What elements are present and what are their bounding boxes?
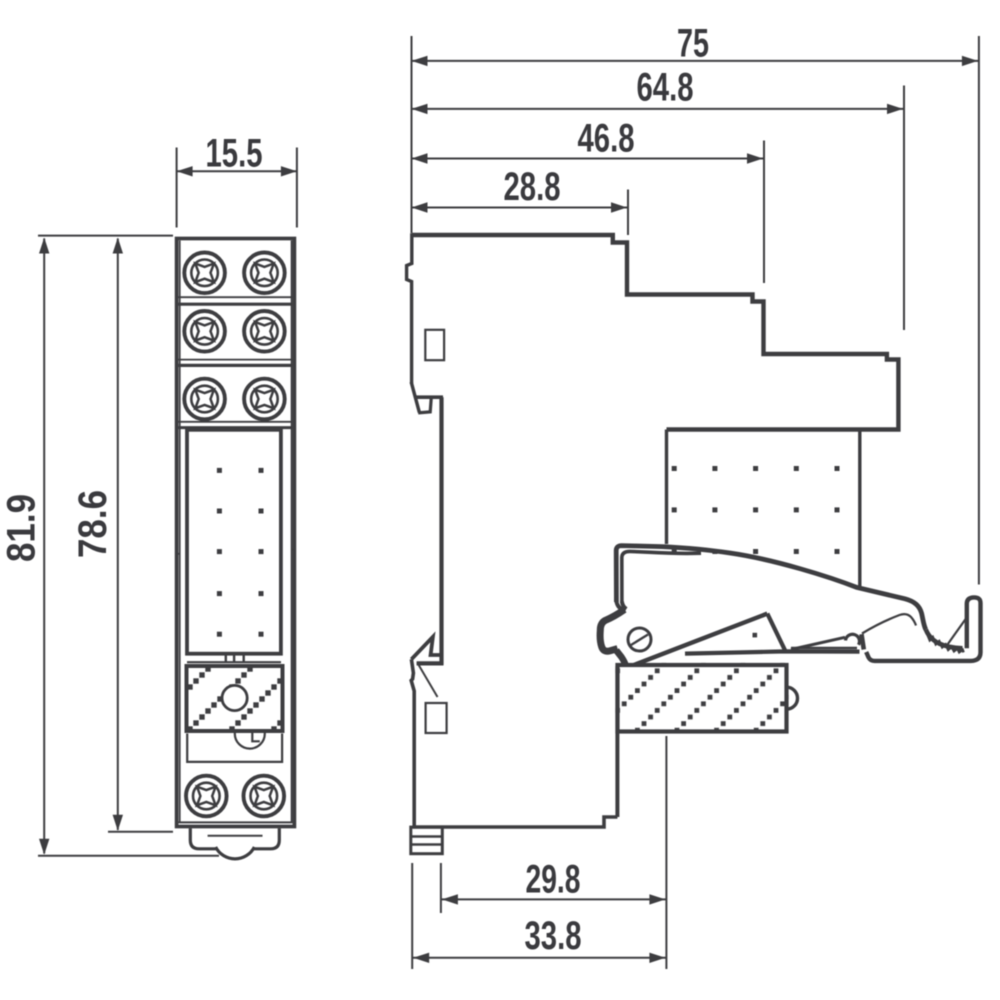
svg-text:46.8: 46.8 (578, 117, 635, 161)
svg-text:15.5: 15.5 (206, 132, 263, 176)
svg-text:64.8: 64.8 (637, 66, 694, 110)
svg-text:29.8: 29.8 (526, 858, 581, 902)
svg-text:81.9: 81.9 (0, 494, 44, 562)
svg-text:28.8: 28.8 (504, 165, 561, 209)
svg-text:75: 75 (677, 22, 709, 66)
svg-text:33.8: 33.8 (525, 914, 582, 958)
svg-text:78.6: 78.6 (71, 490, 115, 558)
